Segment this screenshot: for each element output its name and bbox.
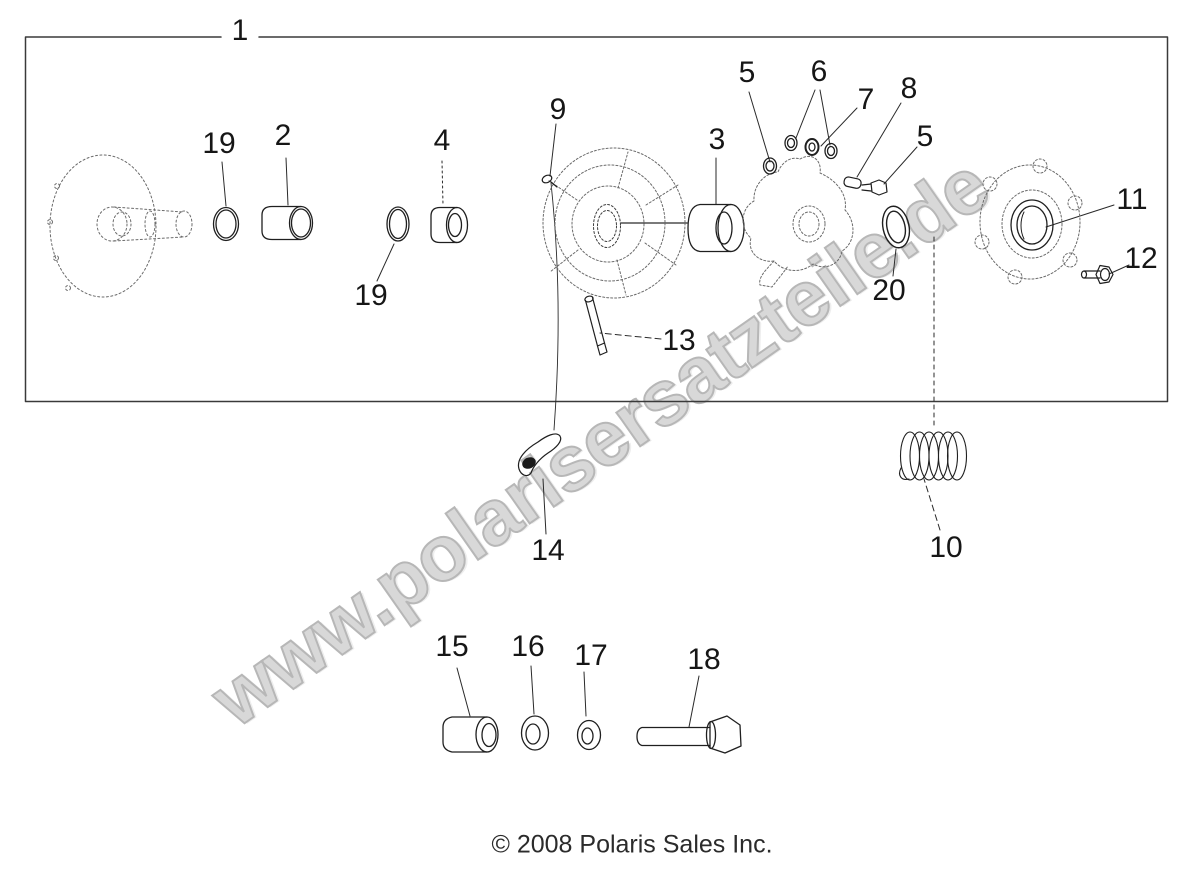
callout-2: 2	[275, 121, 292, 151]
callout-19-a: 19	[202, 129, 235, 159]
callout-12: 12	[1124, 244, 1157, 274]
callout-1: 1	[232, 16, 249, 46]
part-20-ring	[879, 204, 913, 250]
callout-18: 18	[687, 645, 720, 675]
callout-19-b: 19	[354, 281, 387, 311]
callout-15: 15	[435, 632, 468, 662]
part-ring-19b	[387, 207, 409, 241]
part-18-bolt	[637, 716, 741, 753]
callout-6: 6	[811, 57, 828, 87]
callout-7: 7	[858, 85, 875, 115]
part-8-pin	[843, 176, 862, 189]
part-5-bolt	[862, 180, 887, 195]
part-13-pin	[584, 295, 607, 355]
callout-16: 16	[511, 632, 544, 662]
copyright-text: © 2008 Polaris Sales Inc.	[491, 831, 772, 860]
callout-3: 3	[709, 125, 726, 155]
callout-20: 20	[872, 276, 905, 306]
part-10-spring	[900, 432, 967, 480]
part-12-bolt	[1082, 266, 1114, 284]
part-2-bushing	[262, 207, 313, 240]
exploded-diagram-art	[0, 0, 1192, 878]
callout-17: 17	[574, 641, 607, 671]
part-ring-19a	[214, 208, 239, 241]
part-cover-plate	[975, 159, 1082, 284]
callout-10: 10	[929, 533, 962, 563]
part-4-bushing	[431, 208, 468, 243]
part-15-spacer	[443, 717, 498, 752]
part-17-washer	[578, 721, 601, 750]
callout-4: 4	[434, 126, 451, 156]
part-spider	[743, 156, 853, 287]
callout-13: 13	[662, 326, 695, 356]
callout-5-b: 5	[917, 122, 934, 152]
assembly-box	[26, 37, 1168, 402]
parts-diagram-page: www.polarisersatzteile.de	[0, 0, 1192, 878]
part-11-bearing	[1011, 200, 1053, 250]
part-3-bushing	[688, 205, 744, 252]
callout-8: 8	[901, 74, 918, 104]
callout-5-a: 5	[739, 58, 756, 88]
callout-9: 9	[550, 95, 567, 125]
callout-14: 14	[531, 536, 564, 566]
part-16-washer	[522, 716, 549, 750]
part-drive-sheave	[48, 155, 193, 297]
part-14-weight	[518, 434, 560, 476]
callout-11: 11	[1116, 185, 1147, 215]
leader-lines	[222, 90, 1129, 727]
